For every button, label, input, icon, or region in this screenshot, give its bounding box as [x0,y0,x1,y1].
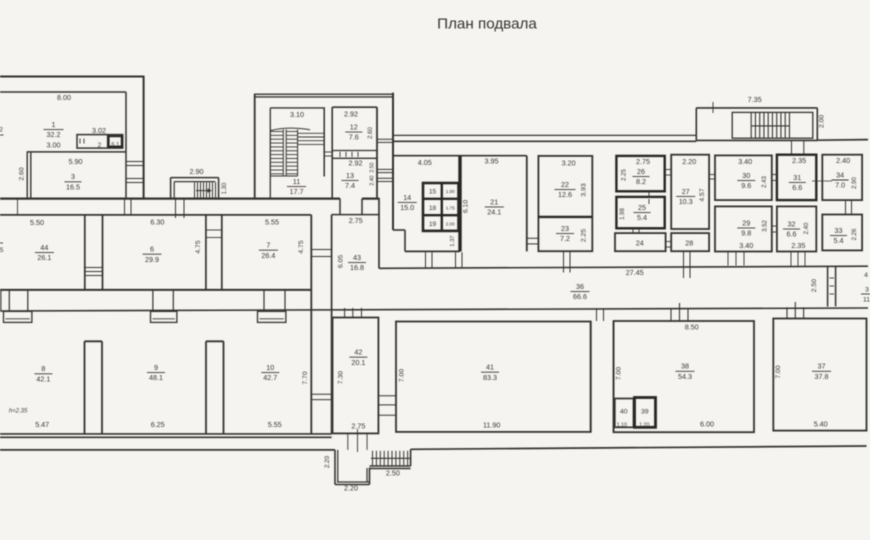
svg-text:1: 1 [52,120,56,129]
svg-text:17.7: 17.7 [290,187,304,196]
svg-text:13: 13 [346,171,354,180]
svg-text:23: 23 [561,224,569,233]
svg-text:5.47: 5.47 [35,420,49,429]
svg-text:12.6: 12.6 [558,190,572,199]
svg-text:2.35: 2.35 [792,156,806,165]
svg-text:37.8: 37.8 [815,372,829,381]
svg-text:10: 10 [266,363,274,372]
svg-text:2.20: 2.20 [344,484,358,493]
svg-text:3.20: 3.20 [562,158,576,167]
svg-text:31: 31 [793,173,801,182]
svg-text:5.4: 5.4 [834,236,844,245]
svg-text:32.2: 32.2 [47,130,61,139]
svg-text:1.37: 1.37 [450,235,456,246]
svg-text:5.40: 5.40 [814,419,828,428]
svg-text:2.40: 2.40 [369,175,375,185]
svg-text:19: 19 [429,221,437,228]
svg-text:3: 3 [71,172,75,181]
svg-text:44: 44 [40,243,48,252]
svg-text:7.6: 7.6 [349,133,359,142]
svg-text:6.10: 6.10 [463,200,470,213]
svg-text:21: 21 [490,197,498,206]
svg-text:2.00: 2.00 [446,222,455,227]
svg-text:2: 2 [0,127,3,134]
svg-text:5.55: 5.55 [265,217,279,226]
svg-text:6.05: 6.05 [338,255,345,268]
svg-text:2.75: 2.75 [636,157,650,166]
svg-text:8: 8 [41,364,45,373]
svg-text:26: 26 [637,167,645,176]
svg-text:41: 41 [486,363,494,372]
svg-text:4.57: 4.57 [699,188,706,201]
svg-text:2.26: 2.26 [852,228,858,240]
svg-text:10.3: 10.3 [679,197,693,206]
svg-text:2.20: 2.20 [682,157,696,166]
svg-text:4: 4 [864,272,868,279]
svg-text:48.1: 48.1 [149,373,163,382]
svg-text:7.2: 7.2 [560,234,570,243]
svg-text:2.92: 2.92 [344,110,358,119]
svg-text:2.40: 2.40 [804,222,810,234]
svg-text:5: 5 [0,247,4,254]
svg-text:3.40: 3.40 [738,157,752,166]
svg-text:5.50: 5.50 [30,218,44,227]
svg-text:24.1: 24.1 [487,208,501,217]
svg-text:11: 11 [863,297,870,304]
svg-text:6.30: 6.30 [150,217,164,226]
svg-text:29: 29 [742,218,750,227]
svg-text:5.4: 5.4 [637,213,647,222]
svg-text:2.50: 2.50 [811,279,818,292]
svg-text:2.40: 2.40 [836,156,850,165]
svg-text:4.75: 4.75 [298,240,305,253]
svg-text:1.30: 1.30 [222,182,228,194]
svg-text:3.95: 3.95 [485,157,499,166]
svg-text:16.8: 16.8 [350,263,364,272]
svg-text:h=2.35: h=2.35 [9,409,28,415]
svg-text:36: 36 [576,282,584,291]
svg-text:2.20: 2.20 [324,455,331,468]
svg-text:18: 18 [429,205,437,212]
svg-text:7.00: 7.00 [616,367,623,380]
svg-text:1.10: 1.10 [617,423,627,429]
svg-text:1.98: 1.98 [620,208,626,220]
svg-text:8.00: 8.00 [57,93,71,102]
svg-text:7.70: 7.70 [302,371,309,384]
svg-text:7.4: 7.4 [345,181,355,190]
svg-text:7.00: 7.00 [398,369,405,382]
svg-text:27.45: 27.45 [626,268,644,277]
svg-text:1.90: 1.90 [446,189,455,194]
svg-text:2.75: 2.75 [351,421,365,430]
svg-text:2.60: 2.60 [19,167,26,180]
svg-text:54.3: 54.3 [678,372,692,381]
svg-text:2.90: 2.90 [852,177,858,189]
svg-text:9: 9 [154,363,158,372]
svg-text:37: 37 [818,362,826,371]
svg-text:4.05: 4.05 [418,158,432,167]
svg-text:66.6: 66.6 [573,292,587,301]
svg-text:42.1: 42.1 [36,374,50,383]
svg-text:6: 6 [150,245,154,254]
svg-text:11.90: 11.90 [483,420,500,429]
svg-text:39: 39 [641,408,649,415]
svg-text:15.0: 15.0 [400,203,414,212]
svg-text:9.6: 9.6 [741,181,751,190]
svg-text:8.50: 8.50 [685,323,699,332]
svg-text:8.2: 8.2 [636,177,646,186]
svg-text:3.00: 3.00 [47,141,61,150]
svg-text:3.10: 3.10 [290,110,304,119]
svg-text:20.1: 20.1 [351,358,365,367]
svg-text:2.90: 2.90 [190,167,204,176]
svg-text:3.52: 3.52 [763,220,769,232]
svg-text:43: 43 [353,253,361,262]
svg-text:6.25: 6.25 [151,420,165,429]
svg-text:7: 7 [266,241,270,250]
svg-text:3.93: 3.93 [581,183,588,196]
svg-text:5.90: 5.90 [69,157,83,166]
svg-text:7.00: 7.00 [775,365,782,378]
svg-text:2.25: 2.25 [581,229,588,242]
svg-text:5.55: 5.55 [268,420,282,429]
svg-text:33: 33 [835,226,843,235]
svg-text:2.60: 2.60 [368,127,374,139]
svg-text:27: 27 [682,187,690,196]
svg-text:25: 25 [638,203,646,212]
svg-text:2.50: 2.50 [369,162,375,172]
svg-text:2.50: 2.50 [386,469,400,478]
svg-text:6.6: 6.6 [792,183,802,192]
svg-text:1.20: 1.20 [639,423,649,429]
svg-text:26.1: 26.1 [37,253,51,262]
svg-text:6.6: 6.6 [787,230,797,239]
svg-text:24: 24 [636,239,644,248]
svg-text:34: 34 [836,170,844,179]
svg-text:30: 30 [742,171,750,180]
svg-text:2.43: 2.43 [762,176,768,188]
svg-text:2.35: 2.35 [791,241,805,250]
svg-text:42.7: 42.7 [263,373,277,382]
svg-text:38: 38 [681,362,689,371]
svg-text:32: 32 [788,220,796,229]
svg-text:6.1: 6.1 [111,142,119,148]
svg-text:7.30: 7.30 [337,371,344,384]
svg-text:3.02: 3.02 [92,126,106,135]
svg-text:3.40: 3.40 [739,241,753,250]
svg-text:6.00: 6.00 [700,419,714,428]
svg-text:14: 14 [403,193,411,202]
svg-text:7.35: 7.35 [748,95,762,104]
svg-text:42: 42 [354,348,362,357]
svg-text:11: 11 [293,177,300,186]
svg-text:2.92: 2.92 [349,158,363,167]
svg-text:16.5: 16.5 [66,182,80,191]
svg-text:4.75: 4.75 [195,240,202,253]
svg-text:План подвала: План подвала [437,16,537,33]
svg-text:3: 3 [865,287,869,294]
svg-text:22: 22 [561,180,569,189]
svg-text:12: 12 [350,123,358,132]
svg-text:2.00: 2.00 [819,115,826,128]
svg-text:2.75: 2.75 [349,216,363,225]
svg-text:40: 40 [620,408,628,415]
svg-text:2.25: 2.25 [621,169,627,181]
svg-text:2: 2 [98,142,102,149]
svg-text:29.9: 29.9 [145,255,159,264]
svg-text:26.4: 26.4 [261,251,275,260]
svg-text:83.3: 83.3 [483,373,497,382]
svg-text:9.8: 9.8 [741,229,751,238]
svg-text:28: 28 [685,239,693,248]
svg-text:1.75: 1.75 [446,205,455,210]
svg-text:7.0: 7.0 [835,181,845,190]
svg-text:15: 15 [429,188,437,195]
